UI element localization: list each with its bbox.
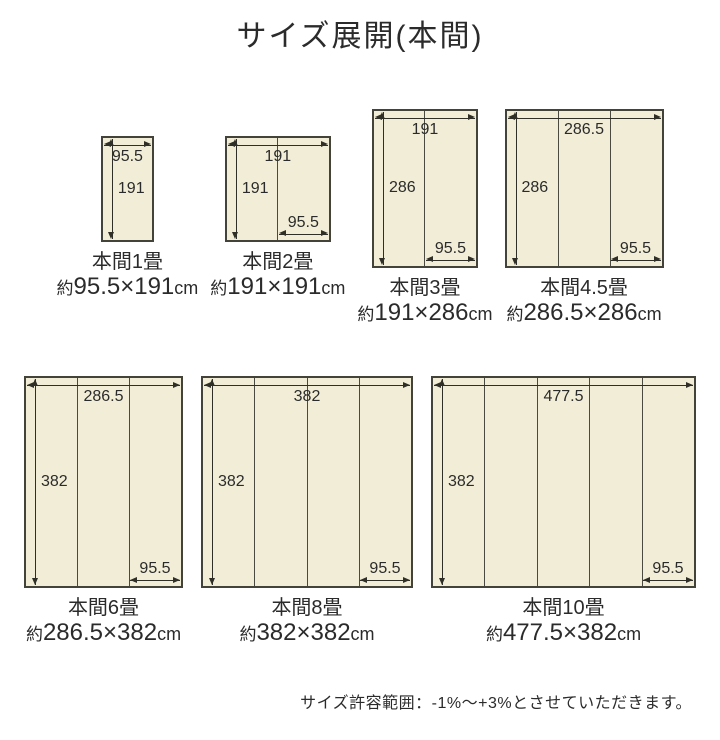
height-dim-label: 191 [118, 181, 145, 197]
arrowhead-up-icon [512, 112, 518, 119]
arrowhead-down-icon [32, 578, 38, 585]
mat-size-item: 477.538295.5本間10畳約477.5×382cm [431, 376, 696, 647]
arrowhead-right-icon [468, 256, 475, 262]
size-unit: cm [321, 278, 345, 298]
height-arrow [35, 379, 36, 585]
arrowhead-right-icon [321, 230, 328, 236]
panel-width-arrow [360, 580, 410, 581]
size-unit: cm [174, 278, 198, 298]
panel-width-dim-label: 95.5 [610, 241, 662, 257]
arrowhead-right-icon [654, 256, 661, 262]
width-dim-label: 382 [203, 389, 411, 405]
mat-diagram: 477.538295.5 [431, 376, 696, 588]
mat-diagram: 95.5191 [101, 136, 154, 242]
arrowhead-up-icon [439, 379, 445, 386]
arrowhead-down-icon [379, 258, 385, 265]
mat-size-item: 95.5191本間1畳約95.5×191cm [57, 109, 199, 301]
arrowhead-up-icon [232, 139, 238, 146]
arrowhead-left-icon [279, 230, 286, 236]
arrowhead-down-icon [512, 258, 518, 265]
tatami-panel [255, 378, 307, 586]
arrowhead-left-icon [611, 256, 618, 262]
page-title: サイズ展開(本間) [0, 20, 720, 55]
mat-name-label: 本間1畳 [92, 251, 163, 273]
size-value: 286.5×286 [523, 299, 637, 326]
size-unit: cm [469, 304, 493, 324]
mat-name-label: 本間3畳 [389, 277, 460, 299]
mat-row-top: 95.5191本間1畳約95.5×191cm19119195.5本間2畳約191… [0, 109, 720, 327]
arrowhead-left-icon [426, 256, 433, 262]
approx-prefix: 約 [26, 625, 43, 644]
mat-size-item: 286.538295.5本間6畳約286.5×382cm [24, 376, 183, 647]
arrowhead-right-icon [468, 114, 475, 120]
width-arrow [434, 385, 693, 386]
mat-diagram: 286.528695.5 [505, 109, 664, 268]
arrowhead-up-icon [379, 112, 385, 119]
tatami-panel [130, 378, 181, 586]
size-value: 382×382 [256, 619, 350, 646]
width-arrow [204, 385, 410, 386]
mat-diagram: 38238295.5 [201, 376, 413, 588]
height-dim-label: 382 [218, 474, 245, 490]
mat-name-label: 本間4.5畳 [540, 277, 628, 299]
approx-prefix: 約 [239, 625, 256, 644]
mat-diagram: 286.538295.5 [24, 376, 183, 588]
mat-size-label: 約382×382cm [239, 619, 374, 647]
size-unit: cm [351, 624, 375, 644]
approx-prefix: 約 [57, 279, 74, 298]
arrowhead-left-icon [360, 577, 367, 583]
height-arrow [442, 379, 443, 585]
height-dim-label: 286 [522, 180, 549, 196]
width-arrow [228, 145, 328, 146]
height-dim-label: 191 [242, 181, 269, 197]
width-arrow [27, 385, 180, 386]
size-value: 191×191 [227, 273, 321, 300]
size-unit: cm [617, 624, 641, 644]
panel-width-arrow [130, 580, 180, 581]
arrowhead-right-icon [403, 577, 410, 583]
panel-width-arrow [279, 234, 328, 235]
approx-prefix: 約 [486, 625, 503, 644]
width-arrow [508, 118, 661, 119]
mat-name-label: 本間10畳 [522, 597, 604, 619]
arrowhead-right-icon [403, 382, 410, 388]
panel-width-arrow [611, 260, 661, 261]
height-arrow [236, 139, 237, 239]
width-dim-label: 95.5 [103, 149, 152, 165]
tatami-panel [590, 378, 642, 586]
arrowhead-left-icon [643, 577, 650, 583]
arrowhead-down-icon [232, 232, 238, 239]
tatami-panel [78, 378, 130, 586]
height-arrow [516, 112, 517, 265]
arrowhead-right-icon [654, 114, 661, 120]
mat-row-bottom: 286.538295.5本間6畳約286.5×382cm38238295.5本間… [0, 376, 720, 647]
arrowhead-left-icon [130, 577, 137, 583]
height-arrow [112, 139, 113, 239]
height-dim-label: 382 [448, 474, 475, 490]
tatami-panel [538, 378, 590, 586]
height-dim-label: 286 [389, 180, 416, 196]
size-unit: cm [638, 304, 662, 324]
mat-name-label: 本間6畳 [68, 597, 139, 619]
panel-width-dim-label: 95.5 [129, 561, 181, 577]
tatami-panel [360, 378, 411, 586]
mat-size-label: 約286.5×382cm [26, 619, 181, 647]
mat-size-label: 約95.5×191cm [57, 273, 199, 301]
mat-size-label: 約191×286cm [357, 299, 492, 327]
arrowhead-up-icon [108, 139, 114, 146]
width-arrow [375, 118, 475, 119]
mat-size-item: 286.528695.5本間4.5畳約286.5×286cm [505, 109, 664, 327]
arrowhead-up-icon [209, 379, 215, 386]
arrowhead-right-icon [173, 382, 180, 388]
arrowhead-right-icon [173, 577, 180, 583]
tatami-panel [308, 378, 360, 586]
mat-size-item: 38238295.5本間8畳約382×382cm [201, 376, 413, 647]
width-dim-label: 191 [374, 122, 476, 138]
panel-width-arrow [643, 580, 693, 581]
arrowhead-down-icon [108, 232, 114, 239]
arrowhead-down-icon [439, 578, 445, 585]
width-dim-label: 191 [227, 149, 329, 165]
width-dim-label: 477.5 [433, 389, 694, 405]
size-tolerance-note: サイズ許容範囲：-1%〜+3%とさせていただきます。 [0, 689, 720, 713]
mat-diagram: 19128695.5 [372, 109, 478, 268]
mat-size-label: 約191×191cm [210, 273, 345, 301]
panel-width-arrow [426, 260, 475, 261]
panel-width-dim-label: 95.5 [425, 241, 476, 257]
arrowhead-right-icon [321, 141, 328, 147]
arrowhead-down-icon [209, 578, 215, 585]
tatami-panel [643, 378, 694, 586]
mat-diagram: 19119195.5 [225, 136, 331, 242]
size-value: 95.5×191 [74, 273, 175, 300]
panel-width-dim-label: 95.5 [359, 561, 411, 577]
width-dim-label: 286.5 [507, 122, 662, 138]
tatami-panel [485, 378, 537, 586]
approx-prefix: 約 [506, 305, 523, 324]
mat-size-label: 約286.5×286cm [506, 299, 661, 327]
height-arrow [383, 112, 384, 265]
mat-name-label: 本間8畳 [271, 597, 342, 619]
size-value: 286.5×382 [43, 619, 157, 646]
approx-prefix: 約 [357, 305, 374, 324]
panel-width-dim-label: 95.5 [278, 215, 329, 231]
mat-size-item: 19119195.5本間2畳約191×191cm [210, 109, 345, 301]
mat-size-item: 19128695.5本間3畳約191×286cm [357, 109, 492, 327]
approx-prefix: 約 [210, 279, 227, 298]
size-value: 191×286 [374, 299, 468, 326]
mat-name-label: 本間2畳 [242, 251, 313, 273]
size-unit: cm [157, 624, 181, 644]
height-dim-label: 382 [41, 474, 68, 490]
width-dim-label: 286.5 [26, 389, 181, 405]
mat-size-label: 約477.5×382cm [486, 619, 641, 647]
arrowhead-right-icon [144, 141, 151, 147]
size-value: 477.5×382 [503, 619, 617, 646]
tatami-size-chart: サイズ展開(本間) 95.5191本間1畳約95.5×191cm19119195… [0, 20, 720, 740]
arrowhead-right-icon [686, 382, 693, 388]
panel-width-dim-label: 95.5 [642, 561, 694, 577]
arrowhead-right-icon [686, 577, 693, 583]
height-arrow [212, 379, 213, 585]
arrowhead-up-icon [32, 379, 38, 386]
